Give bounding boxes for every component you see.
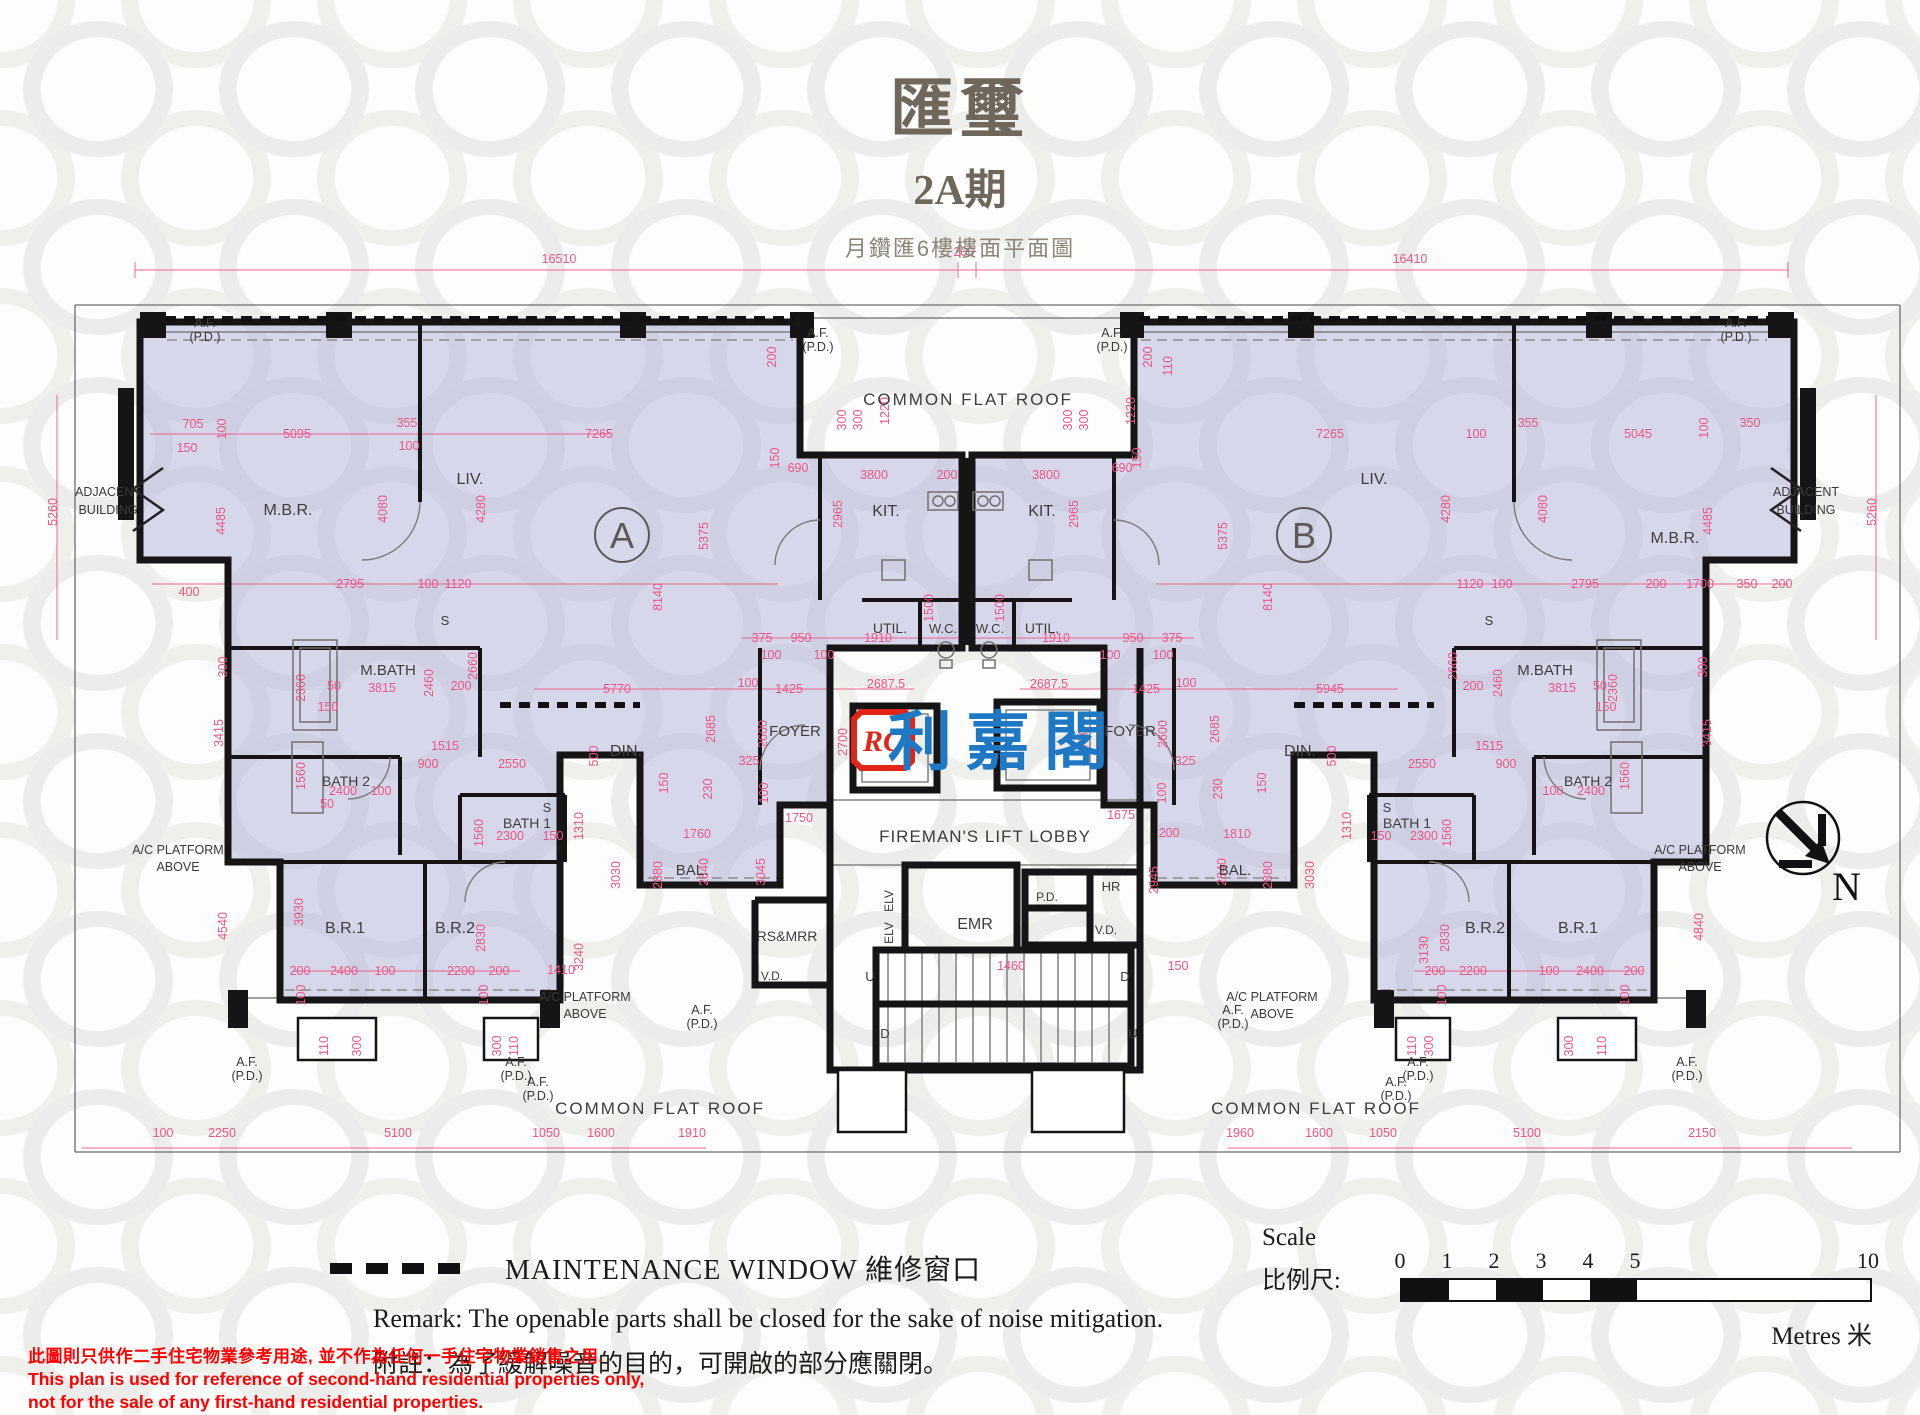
svg-text:7265: 7265 [585,427,613,441]
svg-text:200: 200 [290,964,311,978]
svg-text:HR: HR [1102,879,1121,894]
svg-text:A.F.: A.F. [1101,326,1123,340]
svg-text:BAL.: BAL. [676,862,709,879]
svg-text:3815: 3815 [368,681,396,695]
svg-text:EMR: EMR [957,916,993,933]
scale-unit-label: Metres 米 [1702,1316,1872,1352]
svg-text:375: 375 [752,631,773,645]
floor-plan-page: 匯璽 2A期 月鑽匯6樓樓面平面圖 1651020016410705150509… [0,0,1920,1415]
svg-text:A.F.: A.F. [807,326,829,340]
svg-text:1220: 1220 [1124,397,1138,425]
svg-text:U: U [1128,1026,1137,1041]
svg-text:5375: 5375 [697,522,711,550]
svg-text:50: 50 [327,679,341,693]
svg-text:325: 325 [739,754,760,768]
svg-text:3930: 3930 [292,898,306,926]
svg-text:7265: 7265 [1316,427,1344,441]
svg-text:50: 50 [320,797,334,811]
svg-text:150: 150 [543,829,564,843]
svg-text:300: 300 [1696,657,1710,678]
svg-text:B.R.1: B.R.1 [325,920,365,937]
svg-text:5260: 5260 [1865,498,1879,526]
svg-text:BATH 2: BATH 2 [1564,773,1612,789]
svg-text:V.D.: V.D. [761,969,783,983]
svg-text:B.R.2: B.R.2 [1465,920,1505,937]
svg-text:100: 100 [757,783,771,804]
svg-text:ABOVE: ABOVE [156,860,199,874]
svg-text:A/C PLATFORM: A/C PLATFORM [1654,843,1745,857]
svg-text:200: 200 [489,964,510,978]
svg-text:KIT.: KIT. [1028,503,1056,520]
svg-text:2550: 2550 [1408,757,1436,771]
svg-text:100: 100 [375,964,396,978]
plan-caption: 月鑽匯6樓樓面平面圖 [0,231,1920,263]
svg-text:2600: 2600 [756,720,770,748]
svg-text:2700: 2700 [836,728,850,756]
svg-text:2200: 2200 [447,964,475,978]
svg-text:3130: 3130 [1417,936,1431,964]
svg-text:(P.D.): (P.D.) [1671,1069,1702,1083]
svg-text:3030: 3030 [609,861,623,889]
svg-text:3815: 3815 [1548,681,1576,695]
svg-text:2150: 2150 [1688,1126,1716,1140]
svg-text:(P.D.): (P.D.) [1402,1069,1433,1083]
svg-text:4280: 4280 [474,495,488,523]
svg-text:150: 150 [1255,773,1269,794]
svg-text:A.F.: A.F. [194,316,216,330]
svg-text:A.F.: A.F. [1222,1003,1244,1017]
svg-text:3045: 3045 [754,858,768,886]
svg-text:300: 300 [1422,1036,1436,1057]
svg-text:S: S [1383,800,1392,815]
svg-text:W.C.: W.C. [929,621,957,636]
svg-text:200: 200 [1159,826,1180,840]
svg-text:1700: 1700 [1686,577,1714,591]
svg-text:200: 200 [1463,679,1484,693]
svg-text:LIV.: LIV. [457,471,484,488]
svg-text:100: 100 [1492,577,1513,591]
svg-text:1760: 1760 [683,827,711,841]
svg-text:DIN.: DIN. [1284,743,1316,760]
svg-text:705: 705 [183,417,204,431]
svg-text:S: S [1485,613,1494,628]
svg-text:(P.D.): (P.D.) [189,330,220,344]
svg-text:(P.D.): (P.D.) [686,1017,717,1031]
svg-text:500: 500 [1325,746,1339,767]
disclaimer-en-2: not for the sale of any first-hand resid… [28,1392,644,1413]
svg-text:2795: 2795 [1571,577,1599,591]
svg-text:V.D.: V.D. [1095,923,1117,937]
svg-text:5260: 5260 [46,498,60,526]
unit-b-letter: B [1292,515,1316,556]
svg-text:150: 150 [1168,959,1189,973]
maintenance-window-label: MAINTENANCE WINDOW 維修窗口 [505,1248,981,1288]
disclaimer-zh: 此圖則只供作二手住宅物業參考用途, 並不作為任何一手住宅物業銷售之用. [28,1342,644,1367]
svg-text:BATH 2: BATH 2 [322,773,370,789]
svg-text:355: 355 [1518,416,1539,430]
svg-text:100: 100 [1697,418,1711,439]
disclaimer-en-1: This plan is used for reference of secon… [28,1369,644,1390]
svg-text:1310: 1310 [1340,812,1354,840]
svg-text:2830: 2830 [1438,924,1452,952]
svg-text:BATH 1: BATH 1 [503,815,551,831]
svg-text:100: 100 [399,439,420,453]
phase-title: 2A期 [0,156,1920,217]
svg-text:100: 100 [371,784,392,798]
svg-text:350: 350 [1737,577,1758,591]
svg-text:2830: 2830 [474,924,488,952]
scale-bar: Scale 比例尺: 01234510 Metres 米 [1262,1224,1912,1354]
svg-text:1600: 1600 [587,1126,615,1140]
svg-text:M.B.R.: M.B.R. [264,502,313,519]
agency-logo: RC 利嘉閣 [854,707,1122,778]
svg-text:KIT.: KIT. [872,503,900,520]
svg-text:BAL.: BAL. [1219,862,1252,879]
svg-text:150: 150 [1596,700,1617,714]
svg-text:BUILDING: BUILDING [1776,503,1835,517]
svg-text:100: 100 [153,1126,174,1140]
svg-text:2660: 2660 [1446,652,1460,680]
svg-text:1460: 1460 [997,959,1025,973]
svg-text:200: 200 [937,468,958,482]
scale-seg-5-10 [1637,1280,1866,1300]
header: 匯璽 2A期 月鑽匯6樓樓面平面圖 [0,0,1920,263]
svg-text:W.C.: W.C. [976,621,1004,636]
svg-text:1600: 1600 [1305,1126,1333,1140]
svg-text:300: 300 [851,410,865,431]
svg-text:1310: 1310 [572,812,586,840]
svg-text:ADJACENT: ADJACENT [1773,485,1839,499]
svg-text:200: 200 [1772,577,1793,591]
svg-text:(P.D.): (P.D.) [522,1089,553,1103]
scale-bar-segments [1400,1278,1872,1302]
north-label: N [1832,864,1861,909]
svg-text:4485: 4485 [214,507,228,535]
svg-text:1500: 1500 [993,594,1007,622]
svg-text:4840: 4840 [1692,913,1706,941]
svg-text:200: 200 [1425,964,1446,978]
svg-text:2965: 2965 [831,500,845,528]
svg-text:110: 110 [317,1036,331,1056]
svg-text:110: 110 [507,1036,521,1056]
svg-text:300: 300 [1061,410,1075,431]
svg-text:2550: 2550 [498,757,526,771]
svg-text:900: 900 [1496,757,1517,771]
svg-text:LIV.: LIV. [1361,471,1388,488]
svg-text:S: S [543,800,552,815]
svg-text:COMMON FLAT ROOF: COMMON FLAT ROOF [555,1099,765,1118]
svg-text:8140: 8140 [1261,583,1275,611]
svg-text:325: 325 [1175,754,1196,768]
svg-text:FOYER: FOYER [769,723,821,740]
svg-text:230: 230 [1211,779,1225,800]
unit-shaded-regions [140,322,1794,1000]
scale-seg-3-4 [1543,1280,1590,1300]
svg-text:100: 100 [1100,648,1121,662]
svg-text:1750: 1750 [785,811,813,825]
svg-text:1560: 1560 [1618,762,1632,790]
svg-text:1425: 1425 [1132,682,1160,696]
svg-text:3415: 3415 [1700,719,1714,747]
svg-text:8140: 8140 [651,583,665,611]
agency-logo-name: 利嘉閣 [888,707,1122,778]
svg-text:3030: 3030 [1303,861,1317,889]
svg-text:100: 100 [1435,985,1449,1006]
svg-text:300: 300 [835,410,849,431]
svg-text:200: 200 [1141,347,1155,368]
svg-text:2687.5: 2687.5 [867,677,905,691]
svg-text:M.B.R.: M.B.R. [1651,530,1700,547]
svg-text:4280: 4280 [1439,495,1453,523]
maintenance-window-symbol [330,1263,460,1274]
svg-text:110: 110 [1595,1036,1609,1056]
svg-text:1960: 1960 [1226,1126,1254,1140]
svg-text:(P.D.): (P.D.) [1380,1089,1411,1103]
svg-text:100: 100 [1176,676,1197,690]
svg-text:690: 690 [788,461,809,475]
svg-text:3800: 3800 [1032,468,1060,482]
svg-text:100: 100 [418,577,439,591]
svg-text:2400: 2400 [1576,964,1604,978]
svg-text:5770: 5770 [603,682,631,696]
svg-text:A.F.: A.F. [1676,1055,1698,1069]
svg-text:A.F.: A.F. [1385,1075,1407,1089]
svg-text:1120: 1120 [1457,577,1484,591]
svg-text:ABOVE: ABOVE [1250,1007,1293,1021]
svg-text:300: 300 [490,1036,504,1057]
svg-text:COMMON FLAT ROOF: COMMON FLAT ROOF [863,390,1073,409]
svg-text:FIREMAN'S LIFT LOBBY: FIREMAN'S LIFT LOBBY [879,827,1091,846]
scale-seg-4-5 [1590,1280,1637,1300]
svg-text:1560: 1560 [1440,819,1454,847]
svg-text:2965: 2965 [1067,500,1081,528]
svg-text:100: 100 [215,419,229,440]
svg-text:2300: 2300 [496,829,524,843]
svg-text:4540: 4540 [216,912,230,940]
svg-text:BUILDING: BUILDING [78,503,137,517]
svg-text:300: 300 [216,657,230,678]
svg-text:1500: 1500 [922,594,936,622]
svg-text:ABOVE: ABOVE [1678,860,1721,874]
svg-text:2685: 2685 [1208,715,1222,743]
scale-seg-1-2 [1449,1280,1496,1300]
svg-text:200: 200 [1646,577,1667,591]
svg-text:300: 300 [350,1036,364,1057]
svg-text:100: 100 [477,985,491,1006]
svg-text:4080: 4080 [376,495,390,523]
scale-seg-0-1 [1402,1280,1449,1300]
svg-text:100: 100 [1539,964,1560,978]
svg-text:300: 300 [1077,410,1091,431]
svg-text:(P.D.): (P.D.) [1096,340,1127,354]
svg-text:UTIL.: UTIL. [873,620,907,636]
svg-text:(P.D.): (P.D.) [802,340,833,354]
legend-remark-en: Remark: The openable parts shall be clos… [373,1304,1258,1334]
svg-text:P.D.: P.D. [1036,890,1058,904]
svg-text:100: 100 [1155,783,1169,804]
svg-text:2250: 2250 [208,1126,236,1140]
svg-text:2360: 2360 [1606,674,1620,702]
svg-text:500: 500 [587,746,601,767]
svg-text:ADJACENT: ADJACENT [75,485,141,499]
svg-text:2685: 2685 [704,715,718,743]
svg-text:1120: 1120 [445,577,472,591]
svg-text:2300: 2300 [1410,829,1438,843]
svg-text:150: 150 [1130,448,1144,469]
svg-text:1910: 1910 [678,1126,706,1140]
svg-text:1560: 1560 [472,819,486,847]
svg-text:2400: 2400 [330,964,358,978]
svg-text:5095: 5095 [283,427,311,441]
svg-text:150: 150 [1371,829,1392,843]
svg-text:2795: 2795 [336,577,364,591]
svg-text:150: 150 [318,700,339,714]
svg-text:1515: 1515 [1475,739,1503,753]
svg-text:200: 200 [765,347,779,368]
svg-text:D: D [880,1026,889,1041]
svg-text:M.BATH: M.BATH [1517,662,1573,679]
pipe-duct-boxes [298,1018,1636,1132]
north-arrow: N [1767,802,1861,909]
svg-text:1050: 1050 [532,1126,560,1140]
svg-text:1560: 1560 [294,762,308,790]
svg-text:100: 100 [761,648,782,662]
svg-text:950: 950 [1123,631,1144,645]
svg-text:1810: 1810 [1223,827,1251,841]
scale-seg-2-3 [1496,1280,1543,1300]
svg-text:4080: 4080 [1536,495,1550,523]
svg-text:DIN.: DIN. [610,743,642,760]
svg-text:150: 150 [657,773,671,794]
svg-text:A/C PLATFORM: A/C PLATFORM [539,990,630,1004]
svg-text:A/C PLATFORM: A/C PLATFORM [1226,990,1317,1004]
svg-text:100: 100 [1618,985,1632,1006]
svg-text:2880: 2880 [651,861,665,889]
svg-text:4485: 4485 [1701,507,1715,535]
svg-text:150: 150 [768,448,782,469]
svg-text:A.F.: A.F. [527,1075,549,1089]
svg-text:(P.D.): (P.D.) [1217,1017,1248,1031]
svg-text:M.BATH: M.BATH [360,662,416,679]
svg-text:3800: 3800 [860,468,888,482]
svg-text:2600: 2600 [1156,720,1170,748]
svg-text:2460: 2460 [422,669,436,697]
svg-text:150: 150 [177,441,198,455]
svg-text:355: 355 [397,416,418,430]
svg-text:A.F.: A.F. [691,1003,713,1017]
svg-text:5375: 5375 [1216,522,1230,550]
svg-text:375: 375 [1162,631,1183,645]
unit-a-letter: A [610,515,634,556]
svg-text:ELV: ELV [882,922,896,944]
svg-text:110: 110 [1405,1036,1419,1056]
svg-text:350: 350 [1740,416,1761,430]
svg-text:2360: 2360 [294,674,308,702]
svg-text:230: 230 [701,779,715,800]
svg-text:RS&MRR: RS&MRR [757,928,818,944]
svg-text:1410: 1410 [547,963,575,977]
svg-text:B.R.1: B.R.1 [1558,920,1598,937]
svg-text:2200: 2200 [1459,964,1487,978]
svg-text:950: 950 [791,631,812,645]
svg-text:3415: 3415 [212,719,226,747]
svg-text:1515: 1515 [431,739,459,753]
svg-text:ABOVE: ABOVE [563,1007,606,1021]
svg-text:1675: 1675 [1107,808,1135,822]
svg-text:B.R.2: B.R.2 [435,920,475,937]
svg-text:5100: 5100 [1513,1126,1541,1140]
svg-text:100: 100 [1466,427,1487,441]
svg-text:100: 100 [738,676,759,690]
svg-text:2660: 2660 [466,652,480,680]
svg-text:100: 100 [1543,784,1564,798]
svg-text:BATH 1: BATH 1 [1383,815,1431,831]
svg-text:(P.D.): (P.D.) [231,1069,262,1083]
svg-text:A.F.: A.F. [505,1055,527,1069]
svg-text:50: 50 [1593,679,1607,693]
svg-text:3240: 3240 [572,943,586,971]
svg-text:A.F.: A.F. [236,1055,258,1069]
svg-text:400: 400 [179,585,200,599]
svg-text:(P.D.): (P.D.) [1720,330,1751,344]
disclaimer: 此圖則只供作二手住宅物業參考用途, 並不作為任何一手住宅物業銷售之用. This… [28,1342,644,1413]
svg-text:2460: 2460 [1491,669,1505,697]
svg-text:200: 200 [451,679,472,693]
svg-text:1425: 1425 [775,682,803,696]
project-title: 匯璽 [0,58,1920,150]
svg-text:1050: 1050 [1369,1126,1397,1140]
svg-text:5100: 5100 [384,1126,412,1140]
svg-text:ELV: ELV [882,890,896,912]
svg-text:100: 100 [294,985,308,1006]
svg-text:2687.5: 2687.5 [1030,677,1068,691]
svg-text:100: 100 [814,648,835,662]
svg-text:A.F.: A.F. [1725,316,1747,330]
svg-text:2880: 2880 [1261,861,1275,889]
svg-text:5045: 5045 [1624,427,1652,441]
svg-text:U: U [865,969,874,984]
svg-text:2945: 2945 [1147,866,1161,894]
svg-text:S: S [441,613,450,628]
svg-text:A.F.: A.F. [1407,1055,1429,1069]
svg-text:110: 110 [1161,356,1175,376]
svg-text:D: D [1120,969,1129,984]
svg-text:UTIL.: UTIL. [1025,620,1059,636]
svg-text:A/C PLATFORM: A/C PLATFORM [132,843,223,857]
svg-text:5945: 5945 [1316,682,1344,696]
svg-text:200: 200 [1624,964,1645,978]
svg-text:900: 900 [418,757,439,771]
svg-text:100: 100 [1153,648,1174,662]
svg-text:300: 300 [1562,1036,1576,1057]
